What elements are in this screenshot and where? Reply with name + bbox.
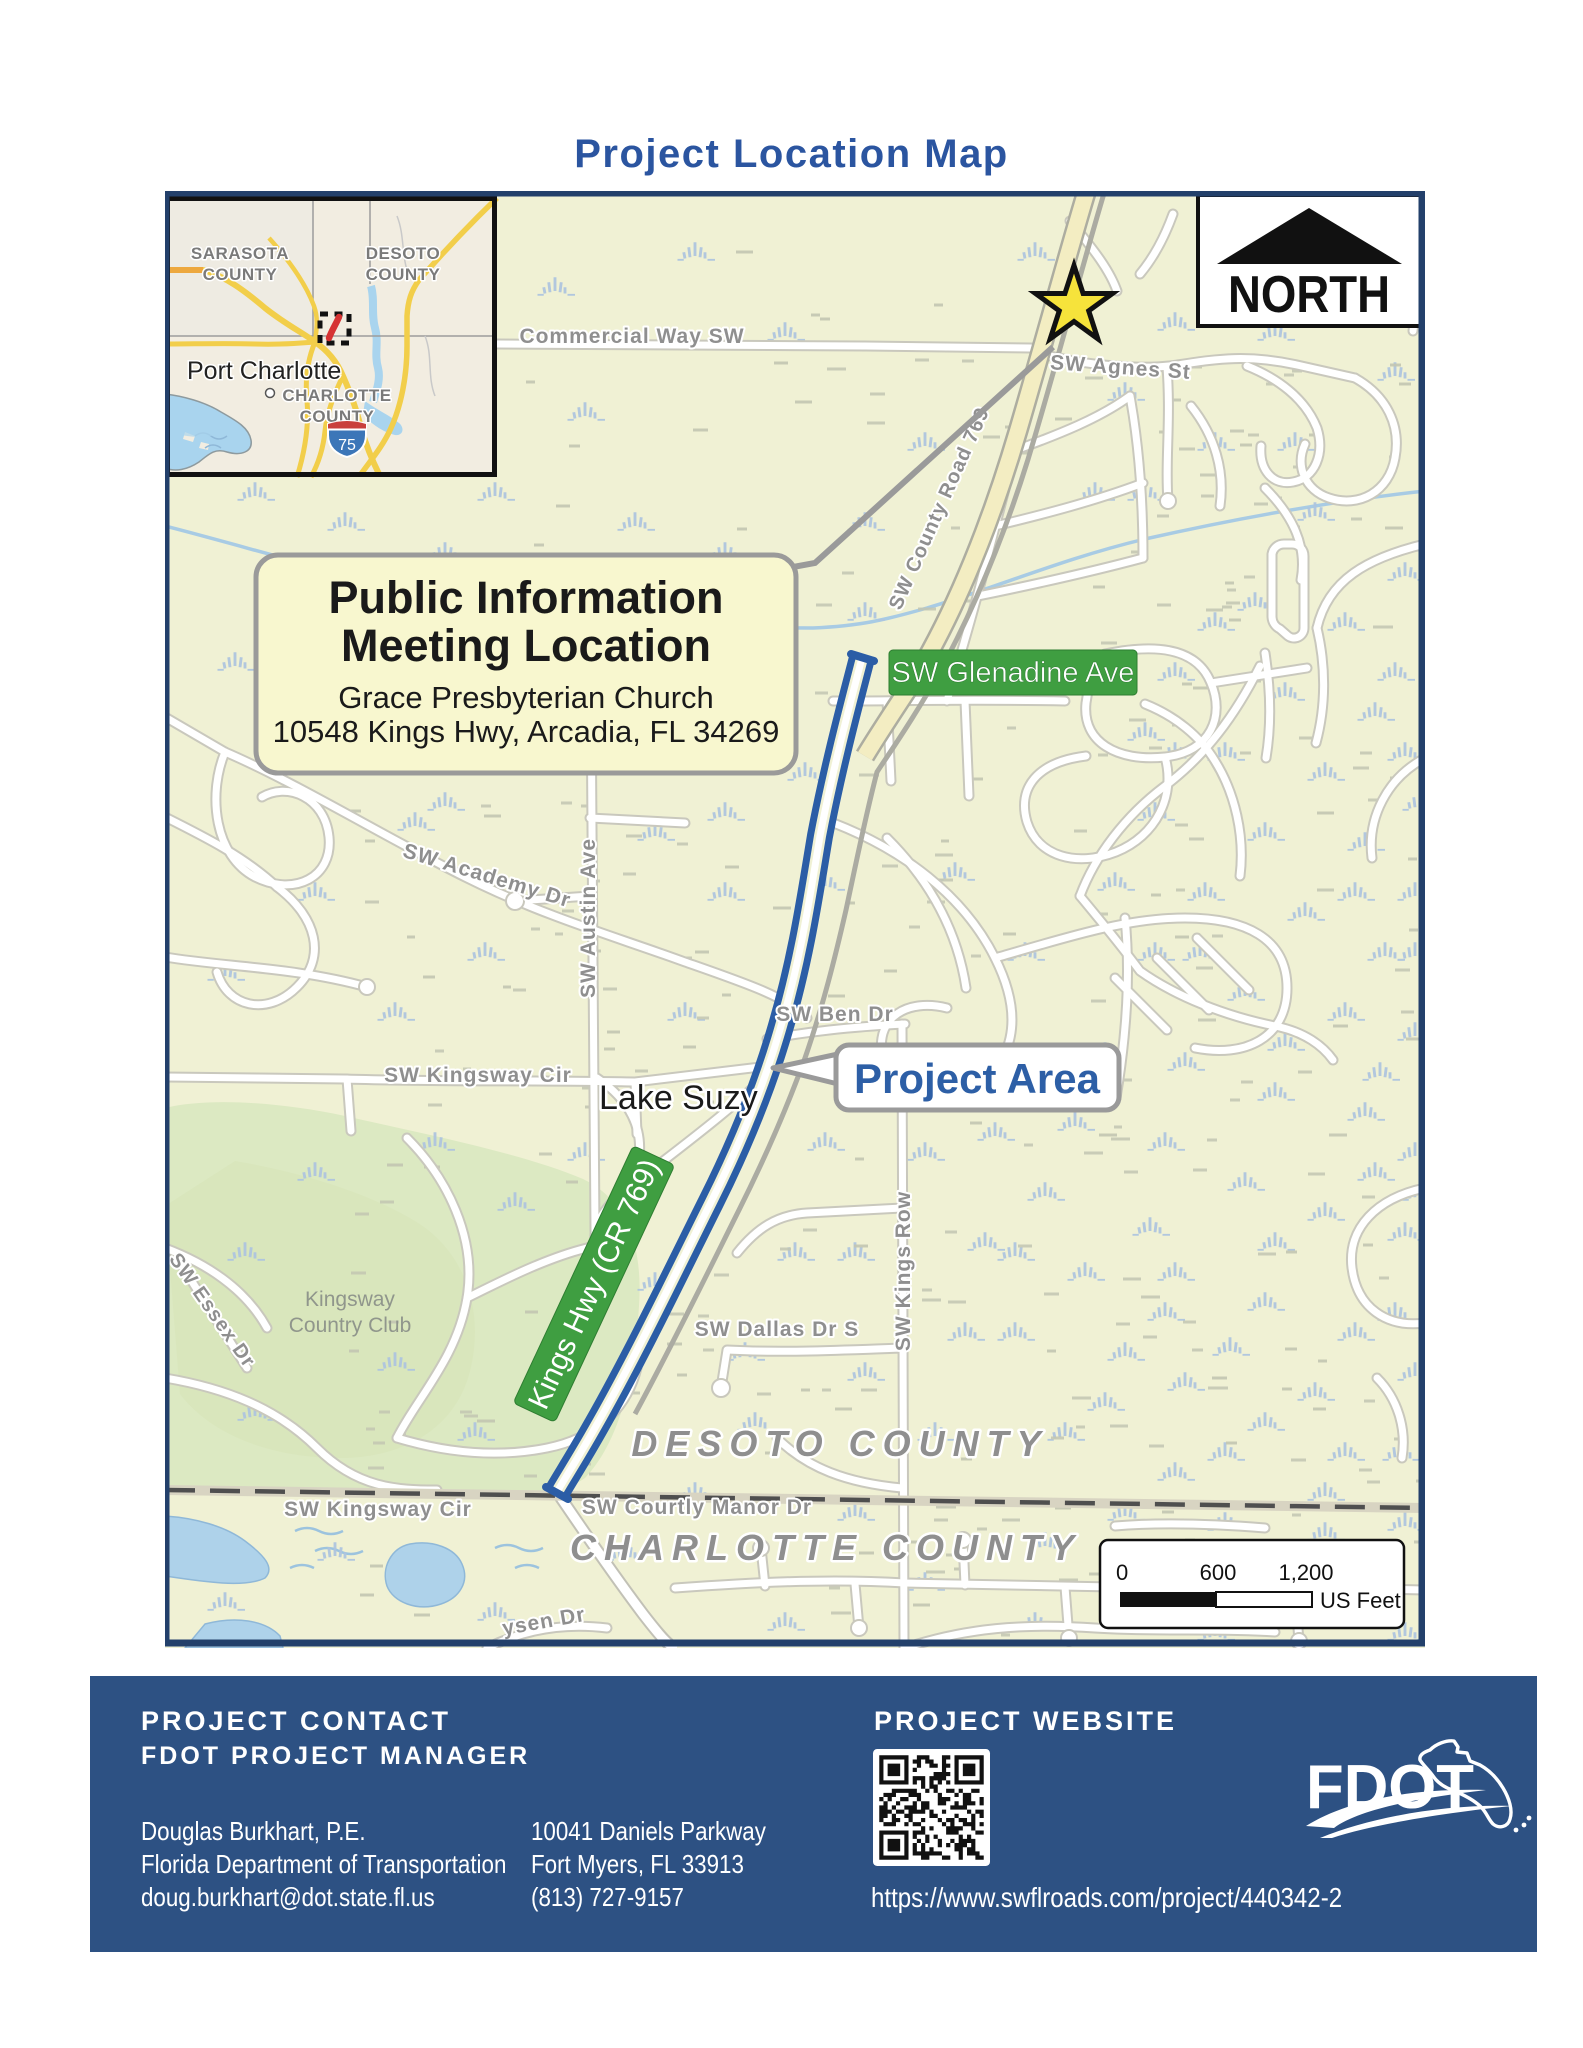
svg-text:COUNTY: COUNTY [366, 265, 441, 284]
svg-text:NORTH: NORTH [1228, 266, 1390, 324]
svg-text:CHARLOTTE COUNTY: CHARLOTTE COUNTY [570, 1527, 1082, 1568]
svg-text:SW Courtly Manor Dr: SW Courtly Manor Dr [582, 1496, 812, 1519]
svg-text:SW Kings Row: SW Kings Row [892, 1191, 915, 1351]
svg-text:1,200: 1,200 [1278, 1560, 1333, 1585]
svg-text:0: 0 [1116, 1560, 1128, 1585]
svg-text:SW Glenadine Ave: SW Glenadine Ave [892, 657, 1135, 689]
svg-text:SW Austin Ave: SW Austin Ave [577, 838, 600, 998]
svg-text:75: 75 [338, 437, 356, 454]
svg-text:SARASOTA: SARASOTA [191, 244, 289, 263]
svg-text:DESOTO: DESOTO [366, 244, 440, 263]
svg-text:SW Dallas Dr S: SW Dallas Dr S [695, 1318, 860, 1341]
svg-text:SW Ben Dr: SW Ben Dr [776, 1003, 894, 1026]
svg-text:SW Kingsway Cir: SW Kingsway Cir [384, 1064, 572, 1087]
svg-text:Public Information: Public Information [328, 572, 723, 623]
svg-text:Meeting Location: Meeting Location [341, 620, 711, 671]
svg-text:Port Charlotte: Port Charlotte [187, 357, 341, 385]
svg-text:Commercial Way SW: Commercial Way SW [519, 325, 744, 348]
svg-text:DESOTO COUNTY: DESOTO COUNTY [631, 1423, 1048, 1464]
svg-text:SW Kingsway Cir: SW Kingsway Cir [284, 1498, 472, 1521]
svg-text:Grace Presbyterian Church: Grace Presbyterian Church [338, 680, 714, 715]
svg-text:600: 600 [1200, 1560, 1237, 1585]
svg-text:Kingsway: Kingsway [305, 1288, 395, 1311]
svg-text:10548 Kings Hwy, Arcadia, FL 3: 10548 Kings Hwy, Arcadia, FL 34269 [273, 714, 780, 749]
svg-text:COUNTY: COUNTY [203, 265, 278, 284]
svg-text:CHARLOTTE: CHARLOTTE [282, 386, 391, 405]
svg-text:Lake Suzy: Lake Suzy [599, 1079, 758, 1117]
svg-text:Country Club: Country Club [289, 1314, 412, 1337]
svg-text:Project Area: Project Area [854, 1055, 1101, 1102]
svg-text:US Feet: US Feet [1320, 1588, 1401, 1613]
